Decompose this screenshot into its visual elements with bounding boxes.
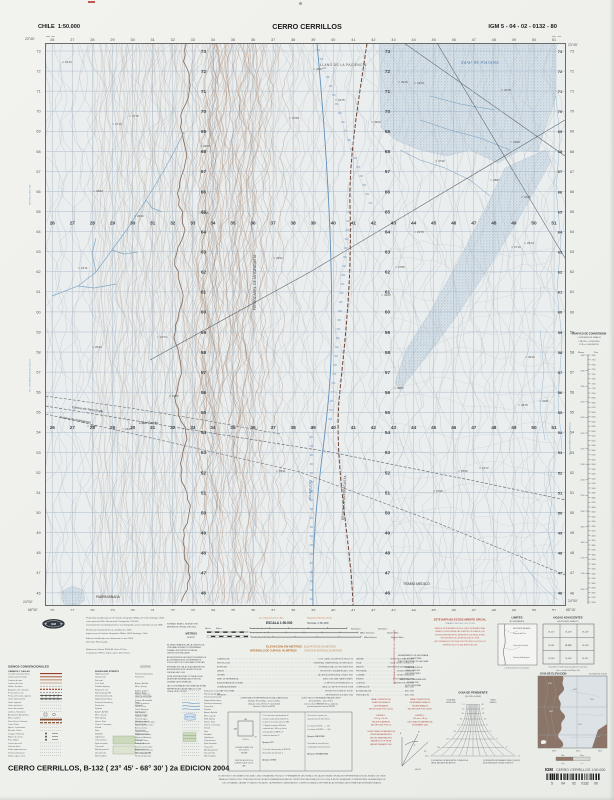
svg-text:SEGUNDA EDICION, ANO 2004: SEGUNDA EDICION, ANO 2004 (326, 694, 353, 697)
svg-text:Cerco, Pirca: Cerco, Pirca (135, 706, 147, 708)
svg-text:Casa, Ruina: Casa, Ruina (8, 724, 20, 726)
svg-text:48: 48 (492, 38, 496, 42)
svg-text:Church, Cemetery: Church, Cemetery (95, 723, 111, 726)
svg-text:Statute Miles: Statute Miles (387, 632, 399, 635)
svg-text:3139: 3139 (90, 424, 97, 428)
svg-text:59: 59 (36, 330, 40, 334)
svg-text:4900: 4900 (592, 493, 596, 495)
svg-text:73: 73 (570, 49, 574, 53)
svg-text:72: 72 (570, 70, 574, 74)
svg-text:EJEMPLO:: EJEMPLO: (376, 715, 386, 717)
svg-text:SE DEBE DESARROLLAR LA CUADRIC: SE DEBE DESARROLLAR LA CUADRICULA (167, 644, 205, 647)
svg-text:Gravel road: Gravel road (95, 677, 105, 679)
svg-text:41: 41 (351, 38, 355, 42)
svg-text:DEPARTAMENTO DE GEOGRAFIA: DEPARTAMENTO DE GEOGRAFIA (398, 654, 429, 657)
svg-text:Provincial boundary: Provincial boundary (95, 702, 113, 704)
svg-text:50: 50 (531, 425, 537, 430)
svg-text:2700: 2700 (592, 597, 596, 599)
svg-text:43: 43 (391, 38, 395, 42)
svg-text:Well, Spring: Well, Spring (204, 718, 215, 720)
svg-text:B-118: B-118 (566, 632, 572, 634)
svg-text:2200: 2200 (581, 417, 585, 419)
svg-text:Dry salt lake: Dry salt lake (95, 751, 107, 754)
svg-text:2329: 2329 (417, 81, 424, 85)
svg-text:50: 50 (532, 38, 536, 42)
svg-text:Edificio publico: Edificio publico (135, 691, 149, 693)
svg-text:7800: 7800 (592, 355, 596, 357)
svg-text:56: 56 (385, 390, 391, 395)
svg-text:64: 64 (36, 230, 40, 234)
svg-text:71: 71 (385, 89, 391, 94)
svg-text:52: 52 (36, 471, 40, 475)
svg-text:Wet meadow: Wet meadow (204, 755, 216, 758)
svg-text:2150: 2150 (581, 433, 585, 435)
svg-text:2835: 2835 (202, 211, 209, 215)
svg-text:59: 59 (558, 330, 563, 335)
svg-text:2545: 2545 (461, 469, 468, 473)
svg-text:IDENTIFICACION DE LA: IDENTIFICACION DE LA (235, 759, 254, 762)
svg-text:INTERVALO DE CURVAS: 50 METROS: INTERVALO DE CURVAS: 50 METROS (250, 648, 297, 652)
svg-text:Cultivos, Vinas: Cultivos, Vinas (135, 739, 148, 742)
svg-text:Ubiquelo: Zona 19 Huso K Carta: Ubiquelo: Zona 19 Huso K Carta B-132 (248, 702, 280, 705)
svg-text:MB: MB (243, 765, 246, 767)
svg-text:2419: 2419 (65, 60, 72, 64)
svg-text:6500: 6500 (592, 417, 596, 419)
svg-text:Kilometers: Kilometers (378, 627, 387, 630)
svg-text:Edicion actualizada con inform: Edicion actualizada con informacion al a… (86, 637, 134, 640)
svg-text:3275: 3275 (338, 98, 345, 102)
svg-text:4700: 4700 (592, 502, 596, 504)
svg-text:LA DECLINACION MAGNETICA: LA DECLINACION MAGNETICA (367, 730, 395, 733)
svg-text:2378: 2378 (417, 230, 424, 234)
svg-text:SIGNOS CONVENCIONALES: SIGNOS CONVENCIONALES (8, 665, 49, 669)
svg-text:3000: 3000 (592, 583, 596, 585)
svg-text:320 mils = 18,0 g: 320 mils = 18,0 g (413, 718, 427, 720)
svg-text:POR EL INSTITUTO GEOGRAFICO MI: POR EL INSTITUTO GEOGRAFICO MILITAR (167, 661, 205, 664)
svg-text:35: 35 (231, 38, 235, 42)
svg-text:29: 29 (110, 38, 114, 42)
svg-text:42: 42 (371, 425, 377, 430)
svg-text:2300: 2300 (596, 743, 600, 745)
svg-text:55: 55 (385, 410, 391, 415)
svg-text:Linea alta tension: Linea alta tension (8, 707, 24, 710)
svg-text:Mine, Quarry: Mine, Quarry (95, 714, 107, 716)
svg-text:6800: 6800 (592, 402, 596, 404)
svg-text:CAMINOS Y CALLES: CAMINOS Y CALLES (8, 670, 30, 673)
svg-text:72: 72 (385, 69, 391, 74)
svg-text:47: 47 (385, 571, 391, 576)
svg-text:Windmill: Windmill (95, 733, 103, 735)
svg-text:58: 58 (385, 350, 391, 355)
svg-text:Ejemplo: 19K MB 270300: Ejemplo: 19K MB 270300 (308, 754, 329, 756)
svg-text:7500: 7500 (592, 369, 596, 371)
svg-text:Linea de ferrocarril: Linea de ferrocarril (135, 697, 152, 699)
svg-text:B-117: B-117 (549, 632, 555, 634)
svg-text:3100: 3100 (592, 578, 596, 580)
svg-text:33: 33 (190, 425, 196, 430)
svg-text:47: 47 (558, 571, 563, 576)
svg-text:70: 70 (570, 110, 574, 114)
svg-text:REFERIDAS AL DATUM PSAD-56 Y L: REFERIDAS AL DATUM PSAD-56 Y LAS (167, 687, 202, 690)
svg-text:2100: 2100 (581, 448, 585, 450)
svg-text:39: 39 (311, 425, 317, 430)
svg-text:Ejemplo: MB 270300: Ejemplo: MB 270300 (308, 736, 325, 738)
svg-text:Referencia: Datum WGS-84, Huso: Referencia: Datum WGS-84, Huso 19 Sur. (86, 648, 127, 651)
svg-text:37: 37 (270, 425, 276, 430)
svg-text:PARA CONVERTIR DE: PARA CONVERTIR DE (371, 698, 391, 701)
svg-text:71: 71 (201, 89, 207, 94)
svg-text:PROVISORIO SUDAMERICANO 1956: PROVISORIO SUDAMERICANO 1956 (320, 670, 353, 673)
svg-text:AUTORIZADA SU CIRCULACION POR: AUTORIZADA SU CIRCULACION POR RESOLUCION… (435, 640, 486, 643)
svg-text:49: 49 (36, 531, 40, 535)
svg-text:Trig. point: Trig. point (204, 745, 213, 748)
svg-text:6300: 6300 (592, 426, 596, 428)
svg-text:1950: 1950 (581, 495, 585, 497)
svg-text:NORMAS: BRASIL, NUEVA YORK: NORMAS: BRASIL, NUEVA YORK (167, 623, 199, 626)
svg-text:Huella, Sendero: Huella, Sendero (8, 686, 23, 688)
svg-text:Spot elevation: Spot elevation (204, 742, 217, 745)
svg-text:26: 26 (50, 221, 56, 226)
svg-text:Curvas de nivel: Curvas de nivel (8, 743, 22, 745)
svg-text:6600: 6600 (592, 412, 596, 414)
svg-text:28: 28 (90, 38, 94, 42)
svg-text:51: 51 (201, 490, 207, 495)
svg-text:29: 29 (110, 221, 116, 226)
svg-text:64: 64 (385, 229, 391, 234)
svg-text:Canal, Acequia: Canal, Acequia (135, 708, 149, 711)
svg-text:42: 42 (371, 221, 377, 226)
svg-text:House, Ruin: House, Ruin (204, 722, 215, 724)
svg-text:Provincial boundary: Provincial boundary (204, 703, 222, 705)
svg-text:45°: 45° (482, 704, 485, 706)
svg-text:MULTIPLIQUE POR 0,05625: MULTIPLIQUE POR 0,05625 (408, 709, 432, 711)
svg-text:ANTECEDENTES DE LA DIRECCION D: ANTECEDENTES DE LA DIRECCION DE (167, 668, 202, 671)
svg-text:4300: 4300 (592, 521, 596, 523)
svg-text:69: 69 (558, 129, 563, 134)
svg-text:54: 54 (234, 728, 237, 731)
svg-text:EN METROS SOBRE EL N.M.M.: EN METROS SOBRE EL N.M.M. (325, 691, 353, 693)
svg-text:55: 55 (558, 410, 563, 415)
svg-text:1.5°: 1.5° (518, 756, 521, 758)
svg-text:Lea las cifras GRANDES de la c: Lea las cifras GRANDES de la cuadricula (304, 702, 339, 705)
svg-text:SE CONTINUA EN LA HOJA B-131: SE CONTINUA EN LA HOJA B-131 (29, 358, 32, 392)
svg-text:46: 46 (451, 425, 457, 430)
svg-text:ANO 2003: ANO 2003 (405, 690, 414, 693)
svg-text:7200: 7200 (592, 383, 596, 385)
svg-text:36: 36 (251, 38, 255, 42)
svg-text:SE ENCUENTRAN EN EL MINISTERIO: SE ENCUENTRAN EN EL MINISTERIO DE RELACI… (435, 633, 485, 636)
svg-text:7000: 7000 (592, 393, 596, 395)
svg-text:ESTE MAPA NO ES DOCUMENTO OFIC: ESTE MAPA NO ES DOCUMENTO OFICIAL (434, 618, 487, 622)
svg-text:2372: 2372 (482, 466, 489, 470)
svg-text:3300: 3300 (374, 120, 381, 124)
svg-text:3006: 3006 (397, 386, 404, 390)
svg-text:30: 30 (130, 38, 134, 42)
svg-text:44: 44 (411, 221, 417, 226)
svg-text:Para obtener el nombre de la h: Para obtener el nombre de la hoja adyace… (549, 666, 588, 669)
svg-text:2642: 2642 (95, 345, 102, 349)
svg-text:Windmill: Windmill (204, 734, 212, 736)
svg-text:32: 32 (170, 221, 176, 226)
svg-text:ELEVATION GUIDE: ELEVATION GUIDE (589, 673, 607, 676)
svg-text:GRADOS A GRADOS: GRADOS A GRADOS (372, 701, 391, 704)
svg-text:51: 51 (552, 38, 556, 42)
svg-text:Los limites interiores no son: Los limites interiores no son oficiales (505, 667, 530, 670)
svg-text:52: 52 (201, 470, 207, 475)
svg-text:70: 70 (201, 109, 207, 114)
svg-text:6:1: 6:1 (458, 725, 460, 727)
svg-text:Lea hacia el ESTE ........ 270: Lea hacia el ESTE ........ 270 (308, 726, 330, 728)
svg-text:como parte del Plan Nacional d: como parte del Plan Nacional de Cartogra… (86, 620, 139, 623)
svg-text:School: School (204, 728, 211, 730)
svg-text:3:1: 3:1 (462, 713, 464, 715)
svg-text:MAGNETICO DE PILAR: MAGNETICO DE PILAR (371, 740, 392, 743)
svg-text:B-145: B-145 (549, 658, 556, 660)
svg-text:6400: 6400 (592, 421, 596, 423)
svg-text:Limite regional: Limite regional (8, 701, 22, 704)
svg-text:3. Lea las cifras grandes al N: 3. Lea las cifras grandes al NORTE: (263, 748, 291, 751)
svg-text:44: 44 (411, 38, 415, 42)
svg-text:Nautical Miles: Nautical Miles (391, 636, 403, 639)
svg-text:TRAMO MEDICO: TRAMO MEDICO (403, 582, 430, 586)
svg-text:Wet meadow: Wet meadow (95, 754, 107, 757)
svg-text:6700: 6700 (592, 407, 596, 409)
svg-text:47: 47 (472, 38, 476, 42)
svg-text:MEDIO DEL MAR, MAREOGRAFO: MEDIO DEL MAR, MAREOGRAFO (323, 678, 353, 681)
svg-text:4200: 4200 (592, 526, 596, 528)
svg-text:Pipeline: Pipeline (204, 709, 212, 711)
svg-text:5500: 5500 (592, 464, 596, 466)
svg-text:Aeropuerto, Aerodromo: Aeropuerto, Aerodromo (8, 713, 30, 716)
svg-text:2400: 2400 (581, 355, 585, 357)
svg-text:2800: 2800 (592, 592, 596, 594)
svg-text:INFORMACION VIAL ACTUALIZADA S: INFORMACION VIAL ACTUALIZADA SEGUN (167, 665, 205, 668)
svg-text:34: 34 (210, 425, 216, 430)
svg-text:CRECE ANUALMENTE 8': CRECE ANUALMENTE 8' (370, 733, 393, 736)
svg-text:31: 31 (150, 38, 154, 42)
svg-text:31: 31 (150, 425, 156, 430)
svg-text:cuadricula de 1.000 m y lea la: cuadricula de 1.000 m y lea las (263, 727, 287, 730)
svg-text:64: 64 (558, 229, 563, 234)
svg-text:4400: 4400 (592, 516, 596, 518)
svg-text:3382: 3382 (96, 189, 103, 193)
svg-text:2250: 2250 (581, 402, 585, 404)
svg-text:5°: 5° (414, 745, 416, 747)
svg-text:2050: 2050 (581, 464, 585, 466)
svg-text:PARA CONVERTIR DE: PARA CONVERTIR DE (410, 698, 430, 701)
svg-text:Terreno erosionado: Terreno erosionado (135, 746, 153, 748)
svg-text:Cañeria, Oleoducto: Cañeria, Oleoducto (8, 710, 26, 713)
svg-text:50: 50 (558, 510, 563, 515)
svg-text:68: 68 (385, 149, 391, 154)
svg-text:Camino pavimentado: Camino pavimentado (8, 676, 28, 679)
svg-text:5200: 5200 (592, 478, 596, 480)
svg-text:CONTOUR INTERVAL 50 METERS: CONTOUR INTERVAL 50 METERS (304, 649, 342, 652)
svg-text:Bosque plantado: Bosque plantado (135, 742, 151, 745)
svg-text:3115: 3115 (524, 195, 531, 199)
svg-text:Provincial boundary: Provincial boundary (135, 674, 153, 676)
svg-text:NOVIEMBRE 2000: NOVIEMBRE 2000 (412, 725, 428, 727)
svg-text:26: 26 (50, 425, 56, 430)
svg-text:00: 00 (594, 782, 598, 786)
svg-text:1:1: 1:1 (462, 704, 464, 706)
svg-text:0132: 0132 (581, 782, 588, 786)
svg-text:2887: 2887 (493, 178, 500, 182)
svg-text:DIGITE LAS COORDENADAS HACIA E: DIGITE LAS COORDENADAS HACIA EL ESTE (301, 697, 341, 700)
svg-text:Preparado y publicado por el I: Preparado y publicado por el Instituto G… (86, 617, 165, 620)
svg-text:6200: 6200 (592, 431, 596, 433)
svg-text:Ruinas historicas: Ruinas historicas (135, 693, 150, 696)
svg-text:3400: 3400 (592, 564, 596, 566)
svg-text:DECLINACION MAGNETICA: DECLINACION MAGNETICA (408, 720, 433, 723)
svg-text:48: 48 (36, 551, 40, 555)
svg-text:Vertiente, Ojo de agua: Vertiente, Ojo de agua (135, 721, 156, 724)
svg-text:2710: 2710 (514, 245, 521, 249)
svg-text:Puente, Alcantarilla: Puente, Alcantarilla (135, 699, 153, 702)
svg-text:Muestra: 1.000 m al ESTE: Muestra: 1.000 m al ESTE (253, 705, 275, 708)
svg-text:IGM: IGM (51, 622, 56, 626)
svg-text:2350: 2350 (581, 370, 585, 372)
svg-text:CONVERSION GRAPH: CONVERSION GRAPH (577, 336, 601, 339)
svg-text:63: 63 (36, 250, 40, 254)
svg-text:PLAN CUADRIENAL DE LAS OEAS: PLAN CUADRIENAL DE LAS OEAS (398, 660, 429, 663)
svg-text:PUBLICACION: PUBLICACION (356, 694, 369, 697)
svg-text:ESCALERA: ESCALERA (447, 699, 456, 702)
svg-text:3219: 3219 (401, 80, 408, 84)
svg-text:Pipeline: Pipeline (95, 708, 103, 710)
svg-text:RECIPROCAMENTE: RECIPROCAMENTE (372, 720, 391, 723)
svg-text:Contour lines: Contour lines (204, 739, 216, 742)
svg-text:9°: 9° (486, 725, 488, 727)
svg-text:1900: 1900 (581, 511, 585, 513)
svg-text:12:1: 12:1 (446, 739, 449, 741)
svg-text:(2a reimpresion de la 1a Ed.): (2a reimpresion de la 1a Ed.) (259, 617, 284, 620)
svg-text:2592: 2592 (276, 256, 283, 260)
svg-text:DEL MINISTERIO: DEL MINISTERIO (405, 673, 421, 675)
svg-text:49: 49 (511, 221, 517, 226)
svg-text:Pies: Pies (594, 352, 598, 354)
svg-text:24°00': 24°00' (23, 600, 33, 604)
svg-text:Tunel ferroviario: Tunel ferroviario (135, 703, 150, 705)
svg-text:69: 69 (201, 129, 207, 134)
svg-text:52: 52 (558, 470, 563, 475)
svg-text:49: 49 (512, 38, 516, 42)
svg-text:PROYECCION U.T.M.: PROYECCION U.T.M. (30, 184, 32, 205)
svg-text:17,50 g = 19,44 c: 17,50 g = 19,44 c (374, 718, 389, 720)
svg-text:60: 60 (558, 310, 563, 315)
svg-text:(Segunda reimpresion oficial): (Segunda reimpresion oficial) (307, 617, 332, 620)
svg-text:ELEVACION EN METROS: ELEVACION EN METROS (266, 645, 302, 649)
svg-text:62: 62 (385, 270, 391, 275)
svg-text:43: 43 (391, 221, 397, 226)
svg-text:39: 39 (311, 221, 317, 226)
svg-text:Laguna, Lago: Laguna, Lago (135, 715, 148, 717)
svg-text:Iglesia, Cementerio: Iglesia, Cementerio (8, 726, 26, 729)
svg-text:66: 66 (570, 190, 574, 194)
svg-text:66: 66 (36, 190, 40, 194)
svg-text:MULTIPLIQUE POR 0,9: MULTIPLIQUE POR 0,9 (371, 725, 391, 727)
svg-text:PLANAS: VER INSTRUCCIONES AL: PLANAS: VER INSTRUCCIONES AL (167, 649, 198, 652)
svg-text:Pozo, Noria, Vertiente: Pozo, Noria, Vertiente (8, 720, 28, 723)
svg-text:Pozo de agua: Pozo de agua (135, 718, 148, 720)
svg-text:(2) PENDIENTE EXPRESADA EN GR: (2) PENDIENTE EXPRESADA EN GRADOS SEGUN (483, 759, 520, 762)
svg-text:32: 32 (171, 38, 175, 42)
svg-text:estime las decimas: 0: estime las decimas: 0 (263, 734, 280, 737)
svg-text:4000: 4000 (592, 535, 596, 537)
svg-text:41: 41 (351, 425, 357, 430)
svg-text:57: 57 (385, 370, 391, 375)
svg-text:Mine, Quarry: Mine, Quarry (204, 715, 216, 717)
svg-text:69: 69 (385, 129, 391, 134)
svg-text:56: 56 (36, 391, 40, 395)
svg-text:1700: 1700 (581, 573, 585, 575)
svg-text:Punto trigonometrico: Punto trigonometrico (8, 748, 27, 751)
svg-text:7700: 7700 (592, 360, 596, 362)
svg-text:58: 58 (36, 350, 40, 354)
svg-text:Faro, Baliza: Faro, Baliza (8, 740, 20, 742)
svg-text:40: 40 (331, 221, 337, 226)
svg-text:Trig. point: Trig. point (95, 745, 104, 748)
svg-text:2:1: 2:1 (462, 709, 464, 711)
svg-text:CERRO CERRILLOS 1:50.000: CERRO CERRILLOS 1:50.000 (556, 768, 605, 772)
svg-text:1:50 - 1:250.000: 1:50 - 1:250.000 (406, 670, 420, 672)
svg-text:51: 51 (36, 491, 40, 495)
svg-text:40: 40 (331, 38, 335, 42)
svg-text:Power line: Power line (204, 706, 214, 708)
svg-text:54: 54 (558, 430, 563, 435)
svg-text:51: 51 (558, 490, 563, 495)
svg-text:Narrow gauge RR: Narrow gauge RR (204, 694, 221, 696)
svg-text:HOJAS ADYACENTES: HOJAS ADYACENTES (553, 616, 582, 620)
svg-text:Mine, Quarry: Mine, Quarry (135, 686, 147, 688)
svg-text:68°15': 68°15' (552, 36, 562, 38)
svg-text:2786: 2786 (398, 265, 405, 269)
svg-text:27: 27 (70, 221, 76, 226)
svg-text:Marshy ground: Marshy ground (95, 749, 108, 751)
svg-text:33: 33 (255, 737, 257, 739)
svg-text:ADJOINING SHEETS: ADJOINING SHEETS (557, 620, 579, 623)
svg-text:Church, Cemetery: Church, Cemetery (204, 724, 220, 727)
svg-text:30 y estime las decimas: 0: 30 y estime las decimas: 0 (263, 752, 284, 755)
svg-text:Contour lines: Contour lines (95, 739, 107, 742)
svg-text:Regional boundary: Regional boundary (204, 700, 221, 702)
svg-text:51: 51 (551, 425, 557, 430)
svg-text:7600: 7600 (592, 364, 596, 366)
svg-text:Airport, Airfield: Airport, Airfield (204, 711, 217, 714)
svg-text:51: 51 (551, 221, 557, 226)
svg-text:6900: 6900 (592, 398, 596, 400)
svg-text:2410: 2410 (578, 724, 582, 726)
svg-text:3200: 3200 (592, 573, 596, 575)
svg-text:1.000 m: 1.000 m (242, 739, 249, 741)
svg-text:FERROCARRIL DE ANTOFAGASTA: FERROCARRIL DE ANTOFAGASTA (253, 254, 257, 310)
svg-text:33: 33 (190, 221, 196, 226)
svg-text:CURVAS AUXILIARES: CURVAS AUXILIARES (217, 686, 237, 689)
svg-text:45: 45 (431, 425, 437, 430)
svg-text:4600: 4600 (592, 507, 596, 509)
svg-text:Trail, Path: Trail, Path (95, 682, 104, 685)
svg-text:IMPRESION OFICIAL IGM 2004: IMPRESION OFICIAL IGM 2004 (167, 626, 197, 629)
svg-text:Spot elevation: Spot elevation (95, 742, 108, 745)
svg-text:GUIA DE PENDIENTE: GUIA DE PENDIENTE (458, 691, 487, 695)
svg-text:32: 32 (170, 425, 176, 430)
svg-text:1850: 1850 (581, 526, 585, 528)
svg-text:Dam: Dam (204, 731, 209, 733)
svg-text:3600: 3600 (592, 554, 596, 556)
svg-text:3319: 3319 (528, 355, 535, 359)
svg-text:35: 35 (230, 425, 236, 430)
svg-text:20:1: 20:1 (437, 747, 440, 749)
